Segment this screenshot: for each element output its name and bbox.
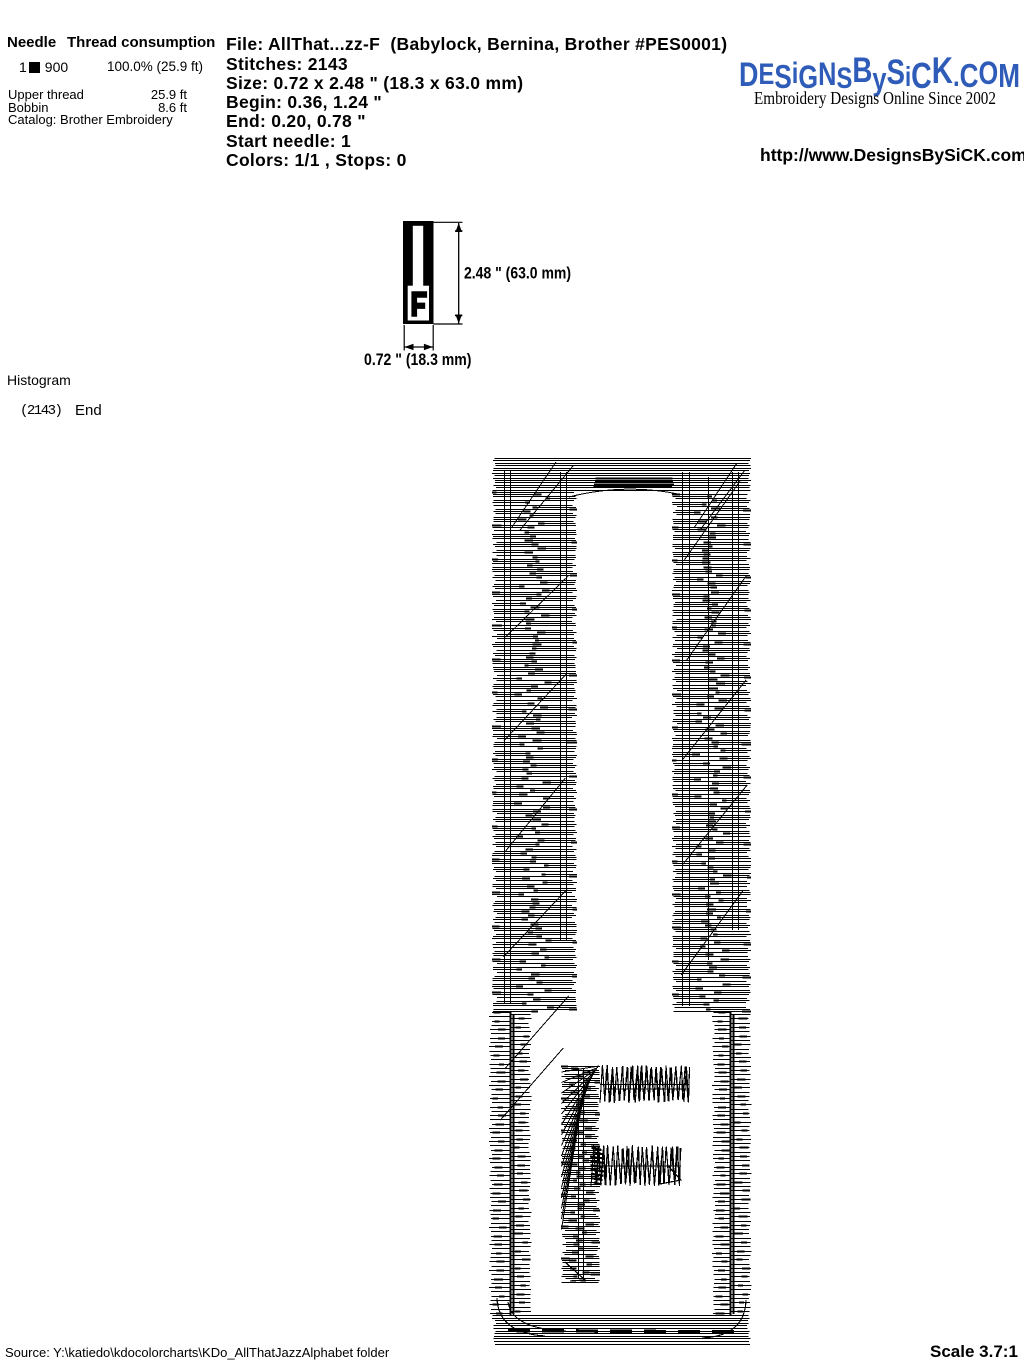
svg-text:0.72 " (18.3 mm): 0.72 " (18.3 mm) [364, 350, 472, 369]
svg-text:2.48 " (63.0 mm): 2.48 " (63.0 mm) [464, 264, 571, 283]
